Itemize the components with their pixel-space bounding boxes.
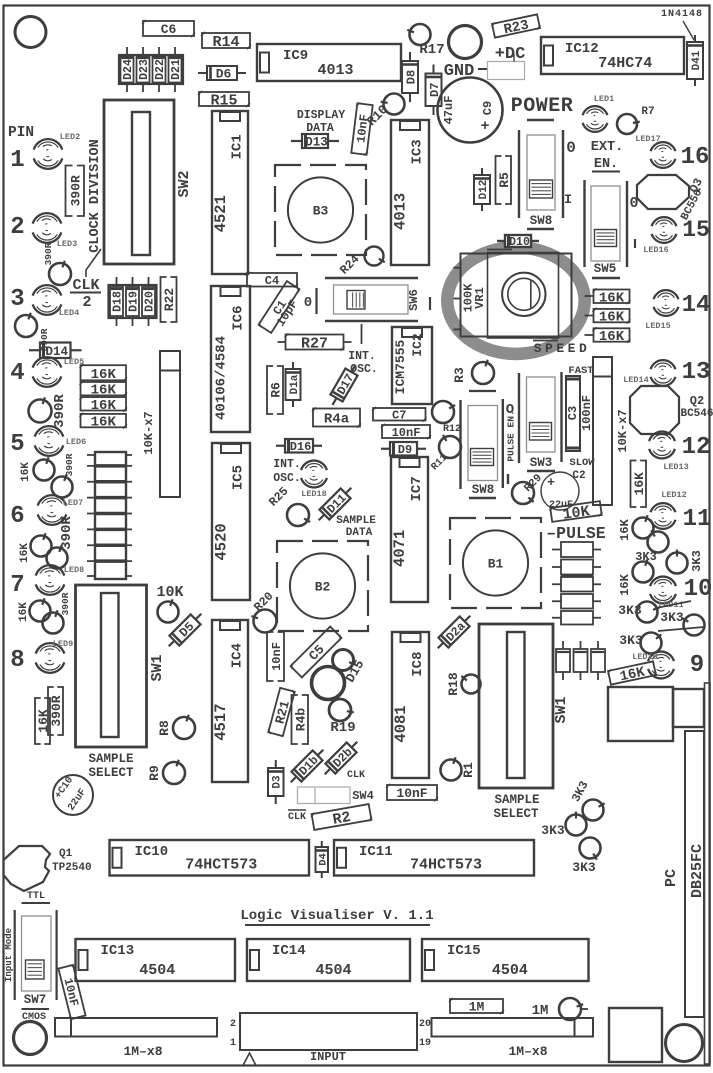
svg-text:R1: R1 xyxy=(461,762,476,778)
svg-text:SAMPLE: SAMPLE xyxy=(88,752,133,766)
svg-text:DISPLAY: DISPLAY xyxy=(297,109,345,122)
svg-text:10K-x7: 10K-x7 xyxy=(142,411,156,454)
svg-text:R5: R5 xyxy=(497,172,512,188)
svg-text:EXT.: EXT. xyxy=(591,140,623,155)
svg-text:10: 10 xyxy=(684,576,713,603)
svg-text:16: 16 xyxy=(681,144,710,171)
svg-text:10nF: 10nF xyxy=(270,642,284,671)
svg-text:4071: 4071 xyxy=(391,530,409,567)
svg-text:R4b: R4b xyxy=(293,708,308,732)
svg-text:R27: R27 xyxy=(301,335,328,352)
svg-text:16K: 16K xyxy=(599,290,625,306)
svg-text:R17: R17 xyxy=(419,42,444,58)
svg-text:BC546: BC546 xyxy=(680,408,713,420)
svg-text:4081: 4081 xyxy=(392,705,410,742)
svg-text:2: 2 xyxy=(82,294,91,311)
svg-text:OSC.: OSC. xyxy=(350,363,378,376)
svg-text:Logic Visualiser V. 1.1: Logic Visualiser V. 1.1 xyxy=(240,908,433,924)
svg-text:0: 0 xyxy=(304,295,312,311)
svg-text:9: 9 xyxy=(690,652,704,679)
svg-text:16K: 16K xyxy=(632,472,647,496)
svg-text:LED1: LED1 xyxy=(594,94,614,104)
svg-text:OSC.: OSC. xyxy=(273,472,301,485)
svg-text:R15: R15 xyxy=(210,92,237,109)
svg-text:C2: C2 xyxy=(572,470,585,482)
svg-text:4520: 4520 xyxy=(212,523,230,560)
svg-text:LED3: LED3 xyxy=(57,239,77,249)
svg-text:D20: D20 xyxy=(144,291,157,312)
svg-text:D21: D21 xyxy=(170,59,183,80)
svg-text:IC4: IC4 xyxy=(229,643,245,668)
svg-text:Input Mode: Input Mode xyxy=(4,928,14,982)
svg-text:2: 2 xyxy=(10,214,24,241)
svg-text:SW5: SW5 xyxy=(594,262,617,276)
svg-text:390R: 390R xyxy=(43,242,54,265)
svg-text:PIN: PIN xyxy=(8,125,34,141)
svg-text:SW1: SW1 xyxy=(149,654,166,681)
svg-text:LED17: LED17 xyxy=(635,134,661,144)
svg-text:SW4: SW4 xyxy=(352,789,374,803)
svg-text:C6: C6 xyxy=(161,22,177,37)
svg-text:16K: 16K xyxy=(618,573,632,595)
svg-text:+: + xyxy=(547,475,555,490)
svg-text:15: 15 xyxy=(682,217,710,243)
svg-text:1M: 1M xyxy=(469,1000,485,1015)
svg-text:IC1: IC1 xyxy=(229,134,245,159)
svg-text:LED10: LED10 xyxy=(632,652,658,662)
svg-text:TTL: TTL xyxy=(27,891,45,902)
svg-text:IC2: IC2 xyxy=(410,333,425,357)
svg-text:R6: R6 xyxy=(269,382,284,398)
svg-text:R2: R2 xyxy=(331,809,352,829)
svg-text:LED13: LED13 xyxy=(663,462,689,472)
svg-text:INT.: INT. xyxy=(273,458,301,471)
svg-text:R3: R3 xyxy=(452,367,467,383)
svg-text:SW3: SW3 xyxy=(530,456,553,470)
svg-text:PULSE EN.: PULSE EN. xyxy=(506,410,517,461)
svg-text:3K3: 3K3 xyxy=(660,610,684,625)
svg-text:CLK: CLK xyxy=(288,812,306,823)
svg-text:19: 19 xyxy=(419,1038,431,1049)
svg-text:CLOCK DIVISION: CLOCK DIVISION xyxy=(88,139,103,252)
svg-text:74HCT573: 74HCT573 xyxy=(410,857,482,874)
svg-text:C4: C4 xyxy=(265,274,279,288)
svg-text:CMOS: CMOS xyxy=(22,1012,46,1023)
svg-text:LED7: LED7 xyxy=(63,498,83,508)
svg-text:SAMPLE: SAMPLE xyxy=(494,793,539,807)
svg-text:D1a: D1a xyxy=(289,374,301,394)
svg-text:10nF: 10nF xyxy=(396,786,427,801)
svg-text:PC: PC xyxy=(663,869,680,887)
svg-text:R9: R9 xyxy=(147,765,162,781)
svg-text:IC15: IC15 xyxy=(447,943,481,959)
svg-text:SW1: SW1 xyxy=(553,696,570,723)
svg-text:7: 7 xyxy=(10,572,24,599)
svg-text:INPUT: INPUT xyxy=(310,1050,346,1064)
svg-text:IC5: IC5 xyxy=(231,465,247,490)
svg-text:4013: 4013 xyxy=(391,193,409,230)
svg-text:13: 13 xyxy=(682,359,711,386)
svg-text:47uF: 47uF xyxy=(442,96,456,125)
svg-text:16K: 16K xyxy=(618,518,632,540)
svg-text:B1: B1 xyxy=(488,557,504,572)
svg-text:LED2: LED2 xyxy=(60,132,80,142)
svg-text:SPEED: SPEED xyxy=(534,341,591,356)
svg-text:R7: R7 xyxy=(641,106,654,118)
svg-text:IC6: IC6 xyxy=(230,306,246,331)
svg-text:LED15: LED15 xyxy=(645,321,671,331)
svg-text:SW2: SW2 xyxy=(176,170,193,197)
svg-text:IC14: IC14 xyxy=(272,943,306,959)
svg-text:16K: 16K xyxy=(91,367,117,383)
svg-text:100nF: 100nF xyxy=(580,395,594,431)
svg-text:R19: R19 xyxy=(330,720,355,736)
svg-text:1M–x8: 1M–x8 xyxy=(123,1044,162,1059)
svg-text:IC9: IC9 xyxy=(283,48,308,64)
svg-text:1N4148: 1N4148 xyxy=(661,9,703,20)
svg-text:SELECT: SELECT xyxy=(88,766,134,780)
svg-text:16K: 16K xyxy=(20,462,32,482)
svg-text:DB25FC: DB25FC xyxy=(689,844,706,898)
svg-text:390R: 390R xyxy=(68,175,83,206)
svg-text:10K: 10K xyxy=(156,584,183,601)
svg-text:+: + xyxy=(480,118,489,135)
svg-text:SW8: SW8 xyxy=(530,214,553,228)
svg-text:16K: 16K xyxy=(19,543,31,563)
svg-text:LED18: LED18 xyxy=(301,489,327,499)
svg-text:390R: 390R xyxy=(49,695,64,726)
svg-text:CLK: CLK xyxy=(72,277,99,294)
svg-text:D22: D22 xyxy=(154,59,167,80)
svg-text:D12: D12 xyxy=(478,180,490,200)
svg-text:SELECT: SELECT xyxy=(493,807,539,821)
svg-text:R22: R22 xyxy=(162,288,177,312)
svg-text:D18: D18 xyxy=(112,291,125,312)
svg-text:1: 1 xyxy=(10,147,24,174)
svg-text:10nF: 10nF xyxy=(392,426,421,440)
svg-text:4517: 4517 xyxy=(212,703,230,740)
svg-text:0: 0 xyxy=(629,195,638,212)
svg-text:LED16: LED16 xyxy=(643,245,669,255)
svg-text:C7: C7 xyxy=(392,409,406,423)
svg-text:SLOW: SLOW xyxy=(569,457,595,469)
svg-text:5: 5 xyxy=(10,431,24,458)
svg-text:INT.: INT. xyxy=(348,350,376,363)
svg-text:390R: 390R xyxy=(60,592,71,615)
svg-text:D16: D16 xyxy=(290,440,312,454)
svg-text:SW8: SW8 xyxy=(472,483,495,497)
svg-text:IC8: IC8 xyxy=(410,652,426,677)
svg-text:IC7: IC7 xyxy=(409,476,425,501)
svg-text:O: O xyxy=(506,402,514,418)
svg-text:74HCT573: 74HCT573 xyxy=(185,857,257,874)
svg-text:SW7: SW7 xyxy=(24,993,47,1007)
svg-text:D6: D6 xyxy=(216,67,232,82)
svg-text:D24: D24 xyxy=(122,59,135,80)
svg-text:C9: C9 xyxy=(481,101,495,115)
svg-text:Q1: Q1 xyxy=(59,848,73,860)
svg-text:LED14: LED14 xyxy=(623,375,649,385)
svg-text:12: 12 xyxy=(682,434,711,461)
svg-text:IC12: IC12 xyxy=(565,41,599,57)
svg-text:SAMPLE: SAMPLE xyxy=(336,515,376,527)
svg-text:IC10: IC10 xyxy=(135,844,169,860)
svg-text:D3: D3 xyxy=(272,775,284,789)
svg-text:1M–x8: 1M–x8 xyxy=(508,1044,547,1059)
svg-text:3: 3 xyxy=(10,286,24,313)
svg-text:POWER: POWER xyxy=(511,95,574,118)
svg-text:R14: R14 xyxy=(212,34,239,51)
svg-text:1M: 1M xyxy=(532,1003,549,1019)
svg-text:D10: D10 xyxy=(509,236,530,249)
svg-text:4: 4 xyxy=(10,360,24,387)
svg-text:LED9: LED9 xyxy=(53,639,73,649)
svg-text:D4: D4 xyxy=(318,853,330,866)
svg-text:16K: 16K xyxy=(91,398,117,414)
svg-text:4504: 4504 xyxy=(139,962,175,979)
svg-text:4013: 4013 xyxy=(317,62,353,79)
svg-text:16K: 16K xyxy=(599,310,625,326)
svg-text:3K3: 3K3 xyxy=(690,550,704,572)
svg-text:40106/4584: 40106/4584 xyxy=(214,336,230,420)
svg-text:IC11: IC11 xyxy=(359,844,393,860)
svg-text:SW6: SW6 xyxy=(407,289,421,311)
svg-text:R4a: R4a xyxy=(324,412,350,428)
svg-text:DATA: DATA xyxy=(346,527,373,539)
svg-text:D9: D9 xyxy=(398,443,412,457)
svg-text:4504: 4504 xyxy=(315,962,351,979)
svg-text:16K: 16K xyxy=(91,415,117,431)
svg-text:I: I xyxy=(564,192,572,207)
svg-text:3K3: 3K3 xyxy=(619,633,643,648)
svg-text:16K: 16K xyxy=(18,602,30,622)
svg-text:4521: 4521 xyxy=(212,195,230,232)
svg-text:74HC74: 74HC74 xyxy=(598,55,652,72)
svg-text:R18: R18 xyxy=(446,672,461,696)
svg-text:D19: D19 xyxy=(128,291,141,312)
svg-text:LED6: LED6 xyxy=(66,437,86,447)
svg-text:0: 0 xyxy=(566,139,576,157)
svg-text:D13: D13 xyxy=(305,136,328,150)
svg-text:8: 8 xyxy=(10,647,24,674)
svg-text:3K3: 3K3 xyxy=(572,860,596,875)
svg-text:B2: B2 xyxy=(315,580,331,595)
svg-text:4504: 4504 xyxy=(492,962,528,979)
svg-text:ICM7555: ICM7555 xyxy=(393,339,408,394)
svg-text:14: 14 xyxy=(682,292,711,319)
svg-text:B3: B3 xyxy=(313,204,329,219)
svg-text:VR1: VR1 xyxy=(473,287,487,309)
svg-text:R12: R12 xyxy=(443,424,461,435)
svg-text:EN.: EN. xyxy=(594,157,618,172)
svg-text:IC13: IC13 xyxy=(101,943,135,959)
svg-text:LED12: LED12 xyxy=(661,490,687,500)
svg-text:–PULSE: –PULSE xyxy=(546,524,606,543)
svg-text:R8: R8 xyxy=(157,720,172,736)
svg-text:LED8: LED8 xyxy=(64,565,84,575)
svg-text:11: 11 xyxy=(683,506,712,533)
svg-text:1: 1 xyxy=(230,1038,236,1049)
svg-text:D8: D8 xyxy=(404,70,418,84)
svg-text:LED4: LED4 xyxy=(59,308,79,318)
svg-text:390R: 390R xyxy=(52,394,68,428)
svg-text:C3: C3 xyxy=(566,406,580,420)
svg-text:D23: D23 xyxy=(138,59,151,80)
svg-text:390R: 390R xyxy=(64,453,75,476)
svg-text:16K: 16K xyxy=(599,329,625,345)
svg-text:6: 6 xyxy=(10,503,24,530)
svg-text:20: 20 xyxy=(419,1019,431,1030)
svg-text:TP2540: TP2540 xyxy=(52,862,92,874)
svg-text:Q2: Q2 xyxy=(690,394,704,408)
svg-text:D41: D41 xyxy=(691,50,703,70)
svg-text:2: 2 xyxy=(230,1019,236,1030)
svg-text:10K-x7: 10K-x7 xyxy=(616,409,630,452)
svg-text:D7: D7 xyxy=(428,83,442,97)
svg-text:3K3: 3K3 xyxy=(541,823,565,838)
svg-text:IC3: IC3 xyxy=(410,139,426,164)
svg-text:CLK: CLK xyxy=(347,770,365,781)
svg-text:390R: 390R xyxy=(59,516,75,550)
